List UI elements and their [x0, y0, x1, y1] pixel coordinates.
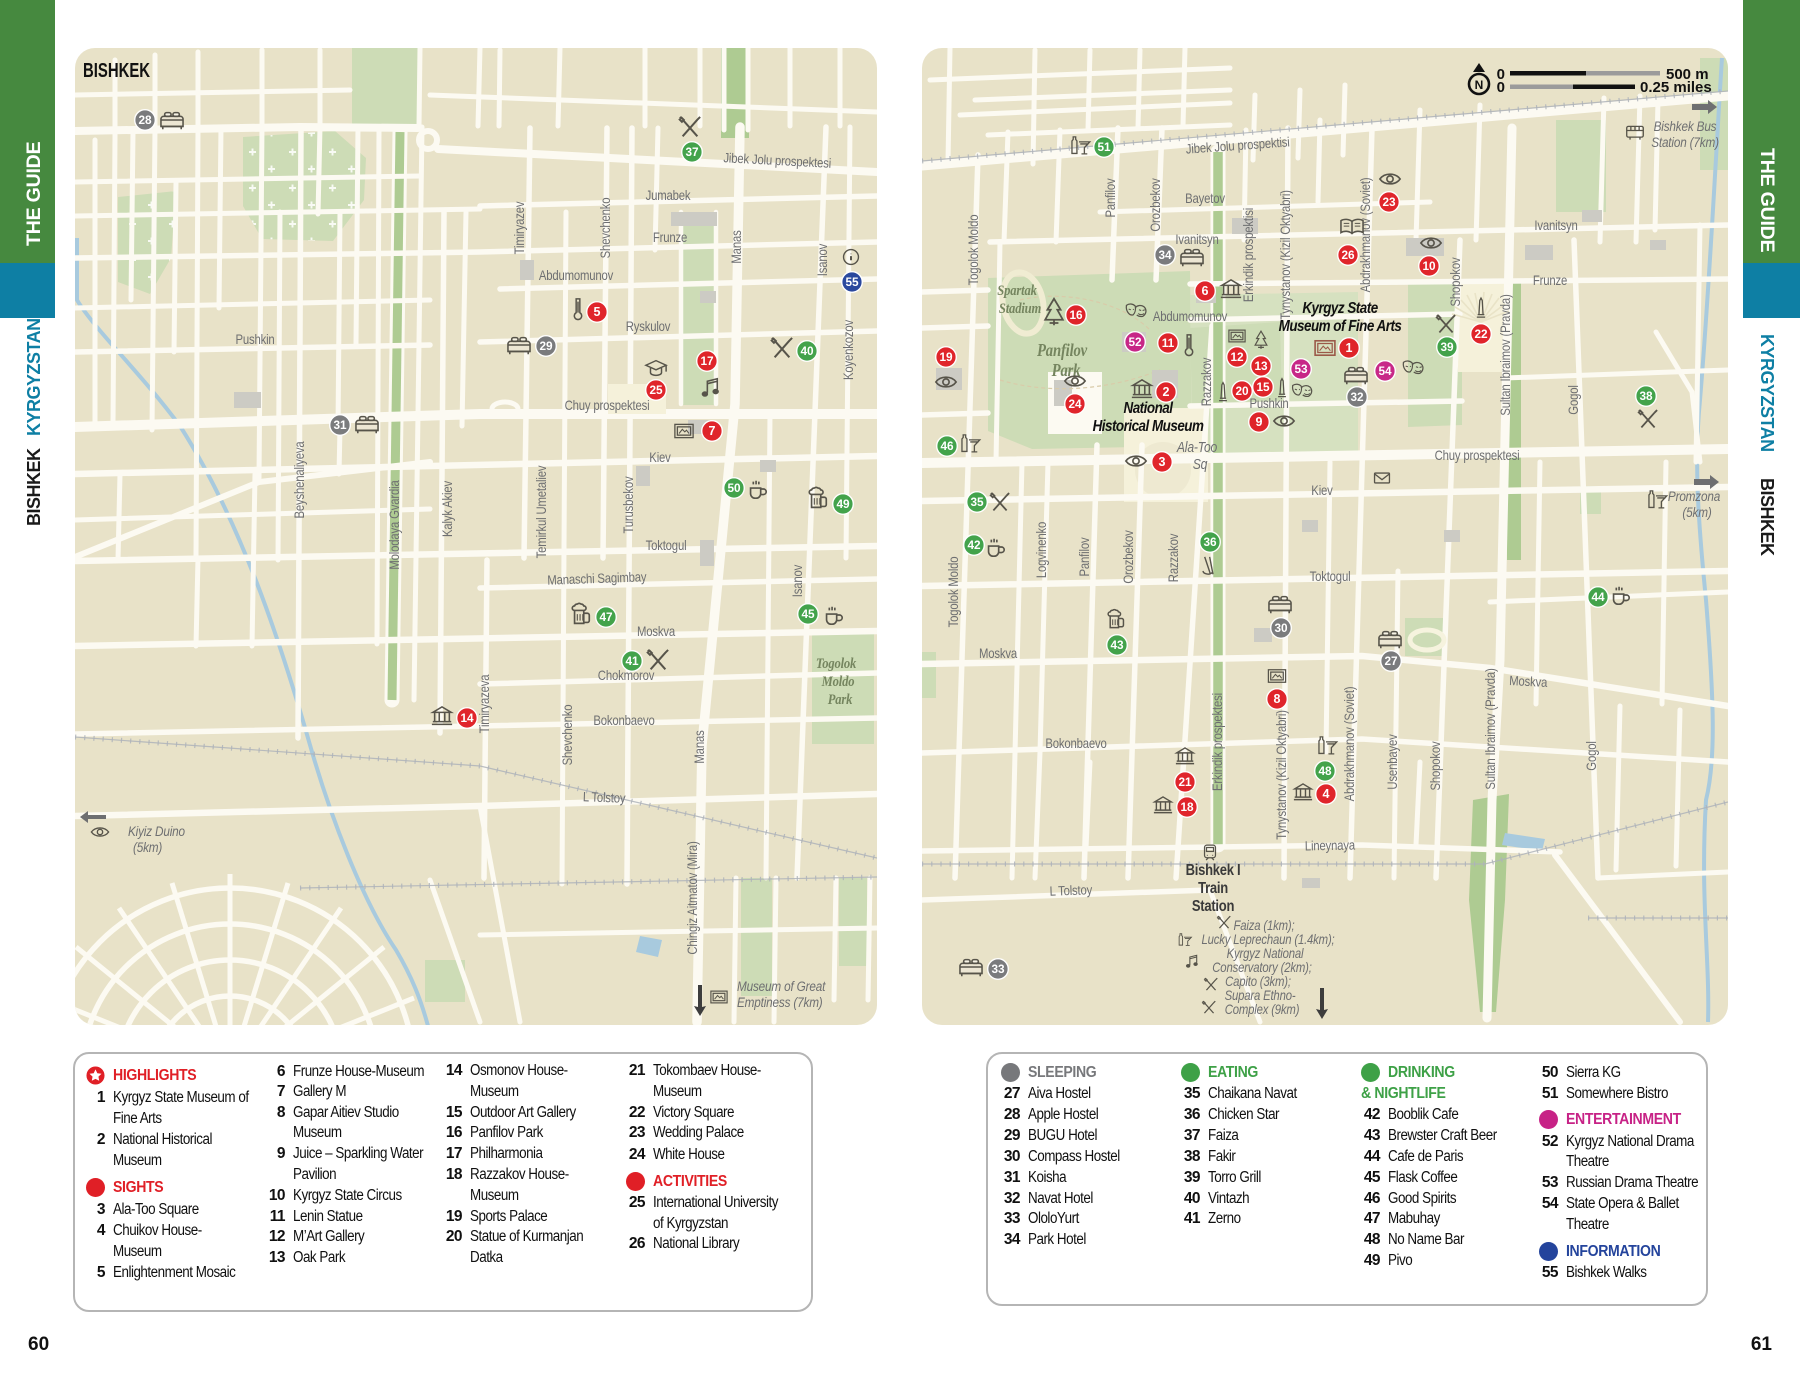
- svg-text:THE GUIDE: THE GUIDE: [23, 141, 45, 246]
- svg-text:KYRGYZSTAN: KYRGYZSTAN: [24, 318, 44, 436]
- svg-text:BISHKEK: BISHKEK: [1757, 478, 1777, 556]
- svg-text:KYRGYZSTAN: KYRGYZSTAN: [1757, 334, 1777, 452]
- svg-text:BISHKEK: BISHKEK: [24, 448, 44, 526]
- svg-text:THE GUIDE: THE GUIDE: [1756, 148, 1778, 253]
